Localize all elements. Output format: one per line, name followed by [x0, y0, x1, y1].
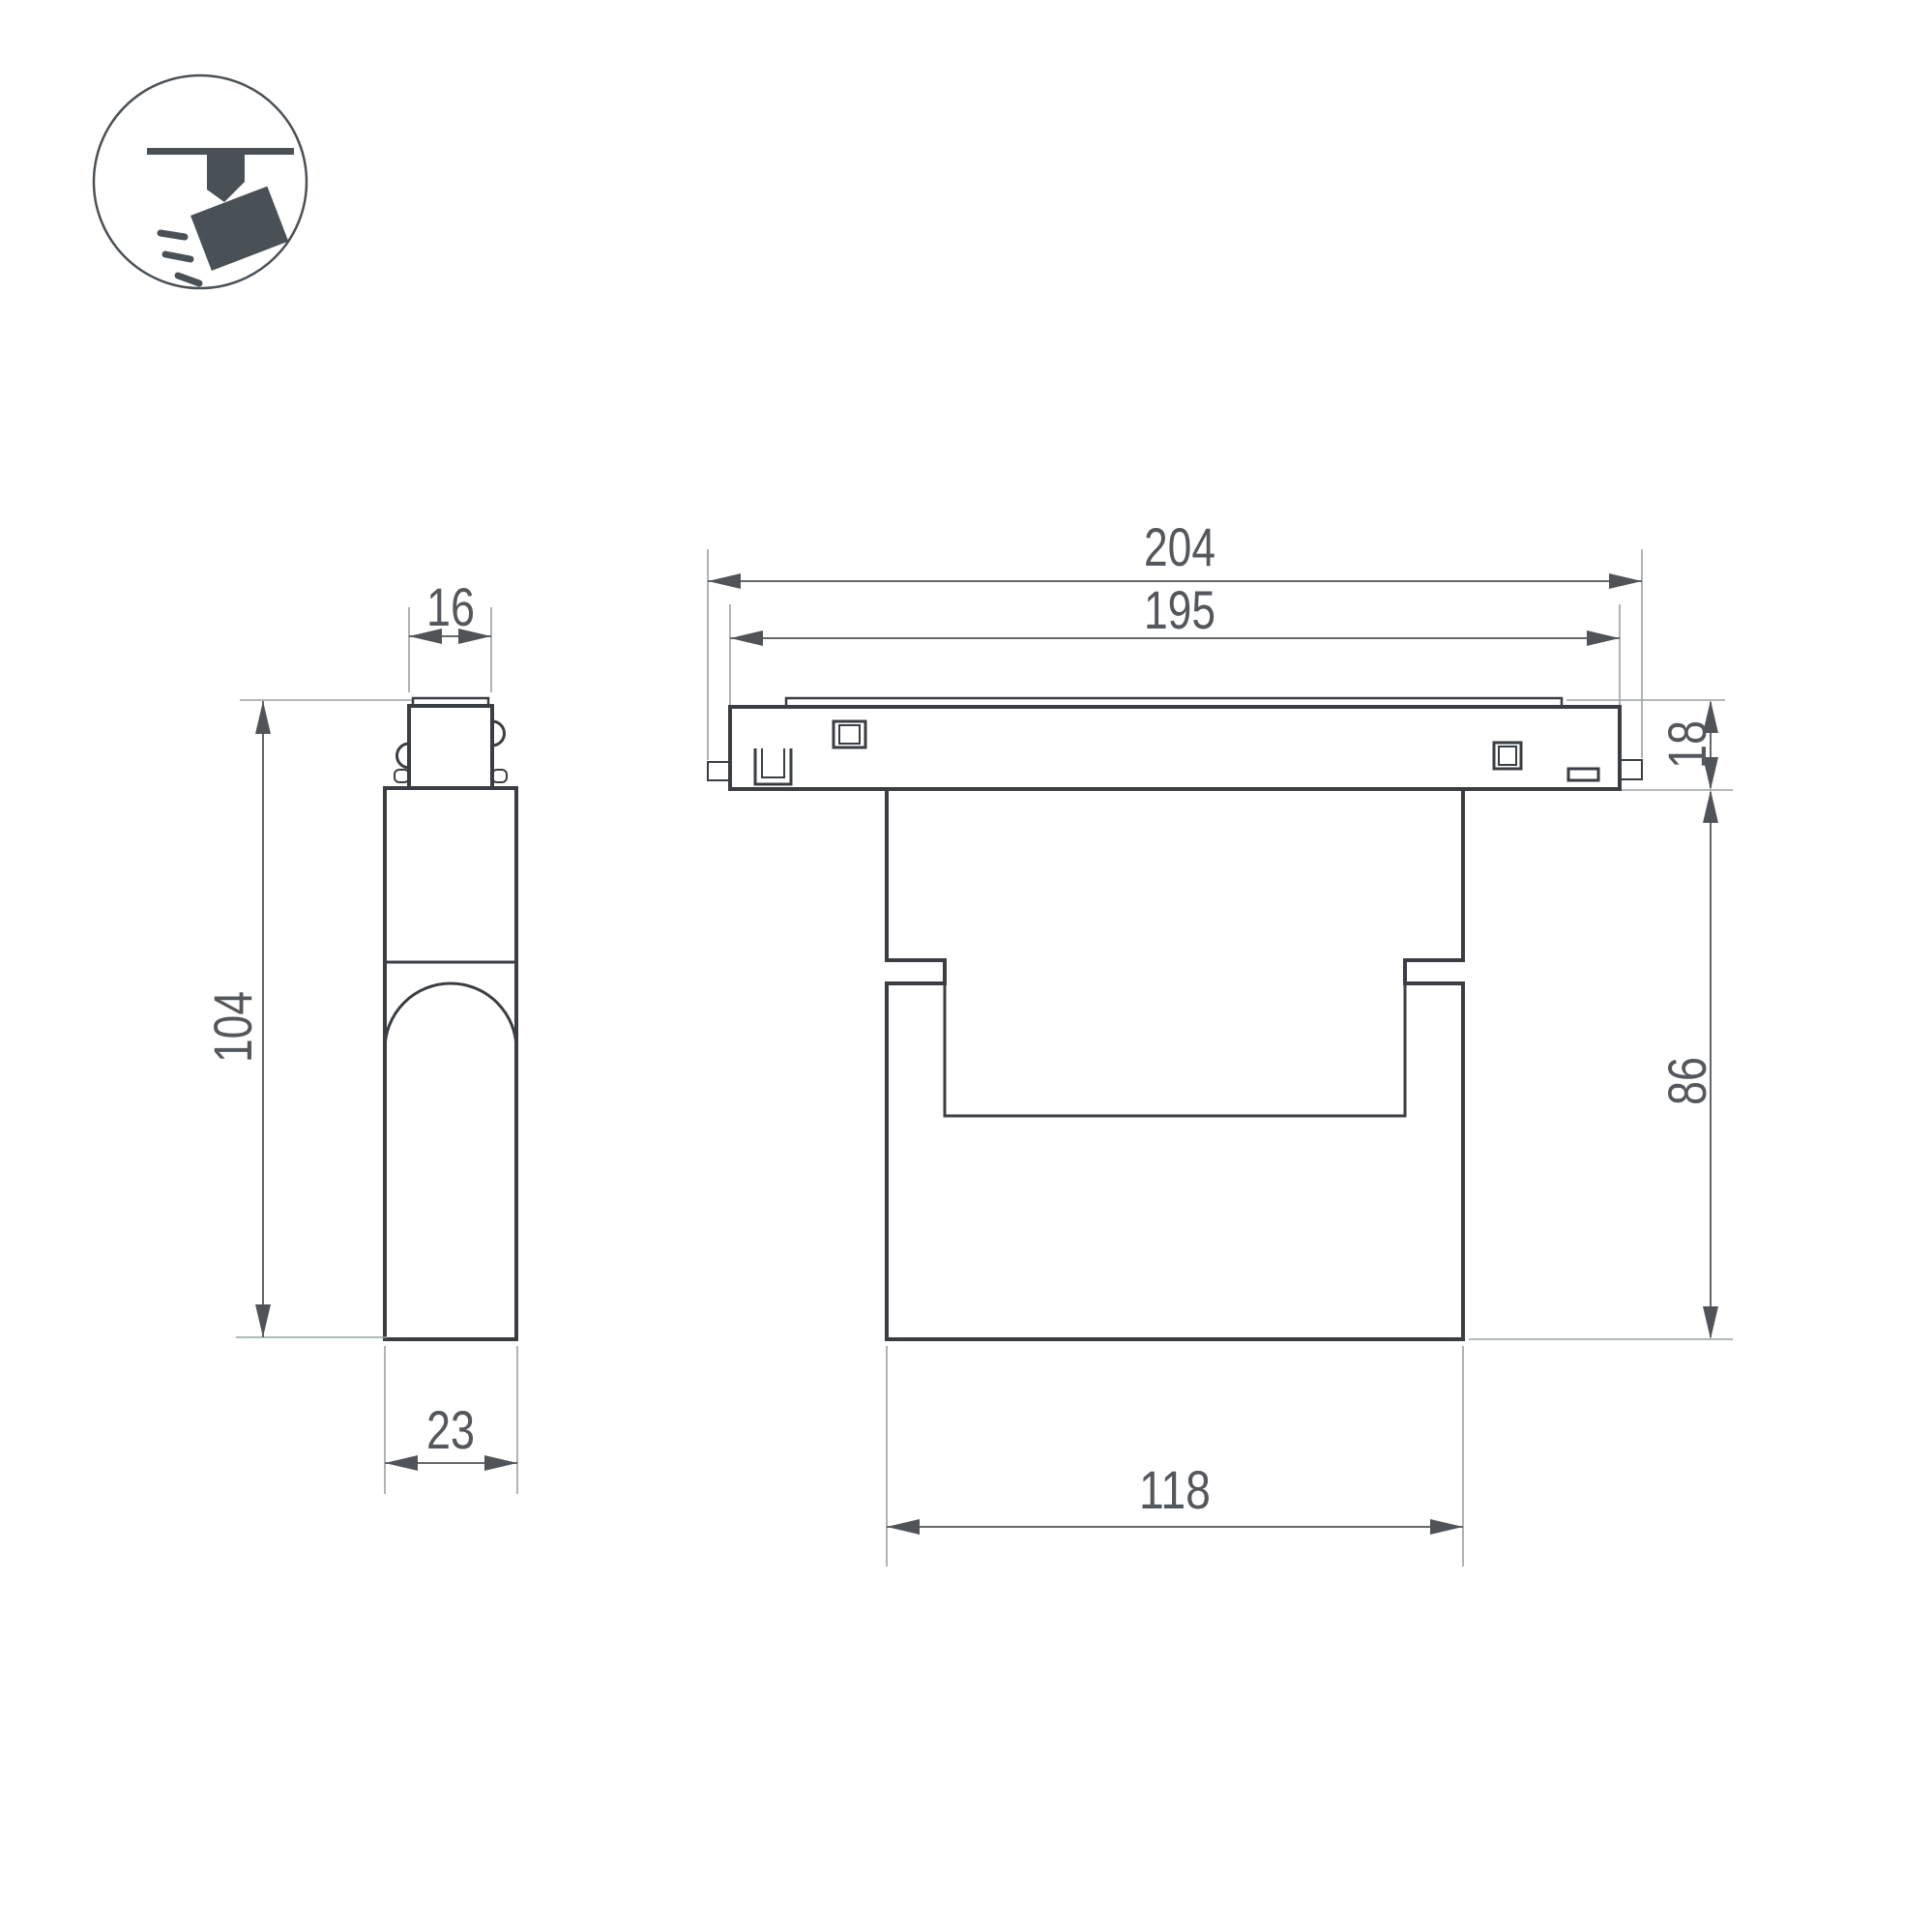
dim-label-overall-width: 204	[1144, 516, 1215, 577]
arrow-left-icon	[385, 1455, 418, 1471]
dim-label-body-width: 118	[1139, 1459, 1211, 1520]
side-view	[385, 698, 516, 1339]
dimension-drawing: 16 104 23	[0, 0, 1932, 1932]
dim-label-adapter-width: 16	[426, 576, 475, 637]
arrow-right-icon	[1430, 1519, 1463, 1535]
front-body	[887, 789, 1463, 1339]
icon-ceiling-line	[147, 148, 294, 155]
side-adapter-foot-left	[395, 770, 409, 782]
arrow-right-icon	[1587, 630, 1620, 646]
arrow-left-icon	[887, 1519, 920, 1535]
arrow-right-icon	[484, 1455, 517, 1471]
dim-label-body-height: 86	[1656, 1057, 1717, 1105]
dimension-adapter-width: 16	[409, 576, 491, 692]
side-adapter-foot-right	[492, 770, 507, 782]
arrow-left-icon	[730, 630, 763, 646]
arrow-up-icon	[255, 701, 271, 734]
dim-label-overall-height: 104	[202, 991, 263, 1063]
icon-light-ray	[165, 254, 190, 259]
arrow-left-icon	[708, 573, 741, 589]
front-view	[708, 698, 1642, 1339]
track-spotlight-icon	[94, 75, 307, 288]
dimension-body-height: 86	[1469, 790, 1733, 1339]
side-body	[385, 788, 516, 1339]
front-contact-tab-left	[708, 762, 730, 780]
icon-light-ray	[161, 233, 185, 237]
dimension-body-depth: 23	[385, 1346, 517, 1494]
side-track-adapter	[409, 706, 492, 788]
dimension-track-width: 195	[730, 579, 1620, 705]
dimension-body-width: 118	[887, 1346, 1463, 1566]
front-contact-tab-right	[1620, 760, 1642, 779]
dim-label-track-width: 195	[1144, 579, 1215, 640]
dim-label-body-depth: 23	[426, 1399, 475, 1460]
arrow-down-icon	[255, 1304, 271, 1337]
icon-circle	[94, 75, 307, 288]
arrow-down-icon	[1703, 1306, 1718, 1339]
dim-label-track-height: 18	[1656, 720, 1717, 769]
dimension-overall-height: 104	[202, 700, 412, 1337]
arrow-right-icon	[1609, 573, 1642, 589]
drawing-canvas: 16 104 23	[0, 0, 1932, 1932]
arrow-up-icon	[1703, 790, 1718, 823]
